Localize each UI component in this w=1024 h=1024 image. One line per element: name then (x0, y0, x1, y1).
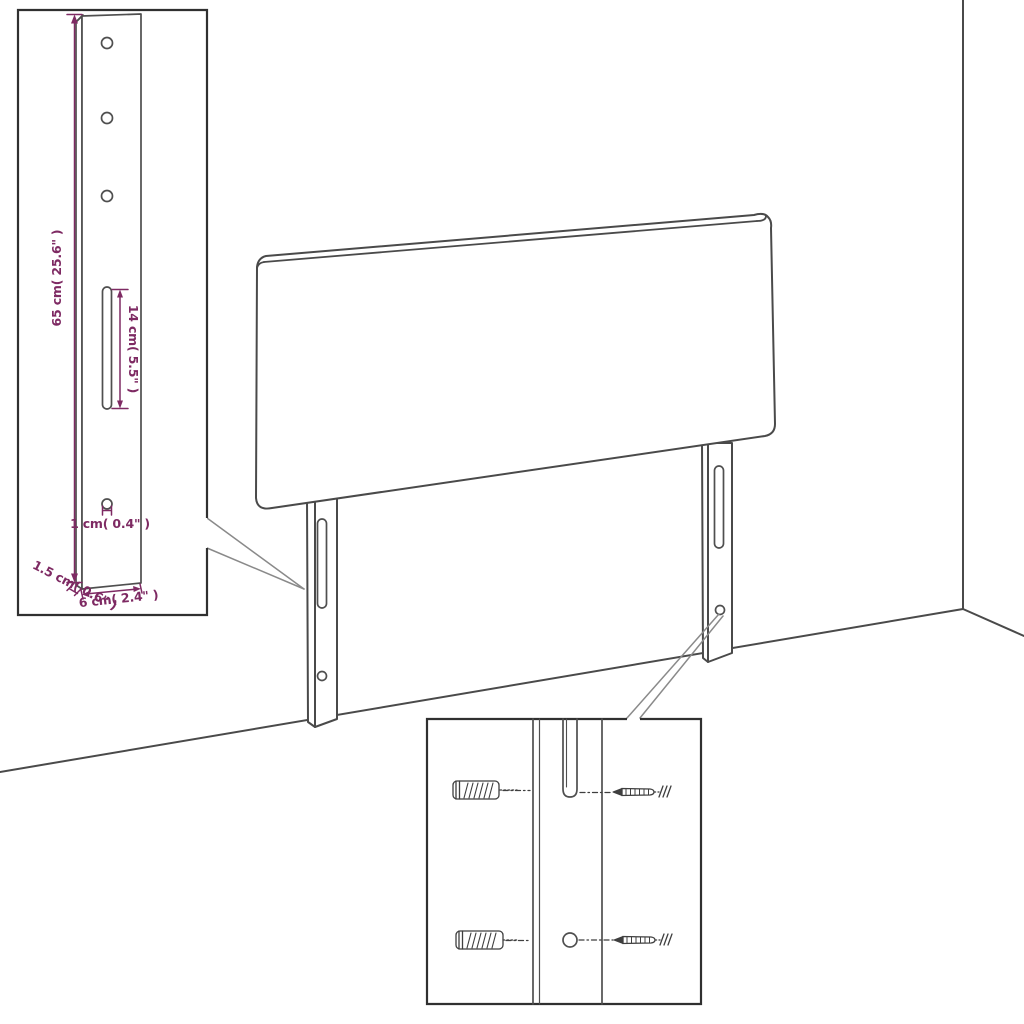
product-diagram: 65 cm( 25.6" ) 14 cm( 5.5" ) 1 cm( 0.4" … (0, 0, 1024, 1024)
leg-detail-callout-lines (207, 518, 304, 589)
dimension-height-label: 65 cm( 25.6" ) (49, 230, 64, 327)
headboard-panel (256, 214, 775, 509)
dimension-slot-label: 14 cm( 5.5" ) (126, 305, 141, 393)
dimension-hole-label: 1 cm( 0.4" ) (70, 516, 150, 531)
mounting-detail-inset (427, 719, 701, 1004)
diagram-canvas: 65 cm( 25.6" ) 14 cm( 5.5" ) 1 cm( 0.4" … (0, 0, 1024, 1024)
inset-leg-side-face (76, 16, 82, 589)
leg-detail-inset: 65 cm( 25.6" ) 14 cm( 5.5" ) 1 cm( 0.4" … (18, 10, 207, 615)
headboard-outline (256, 214, 775, 509)
mounting-detail-inset-frame (427, 719, 701, 1004)
left-leg-side-face (307, 498, 315, 727)
left-leg (307, 498, 337, 727)
floor-line-right (963, 609, 1024, 636)
